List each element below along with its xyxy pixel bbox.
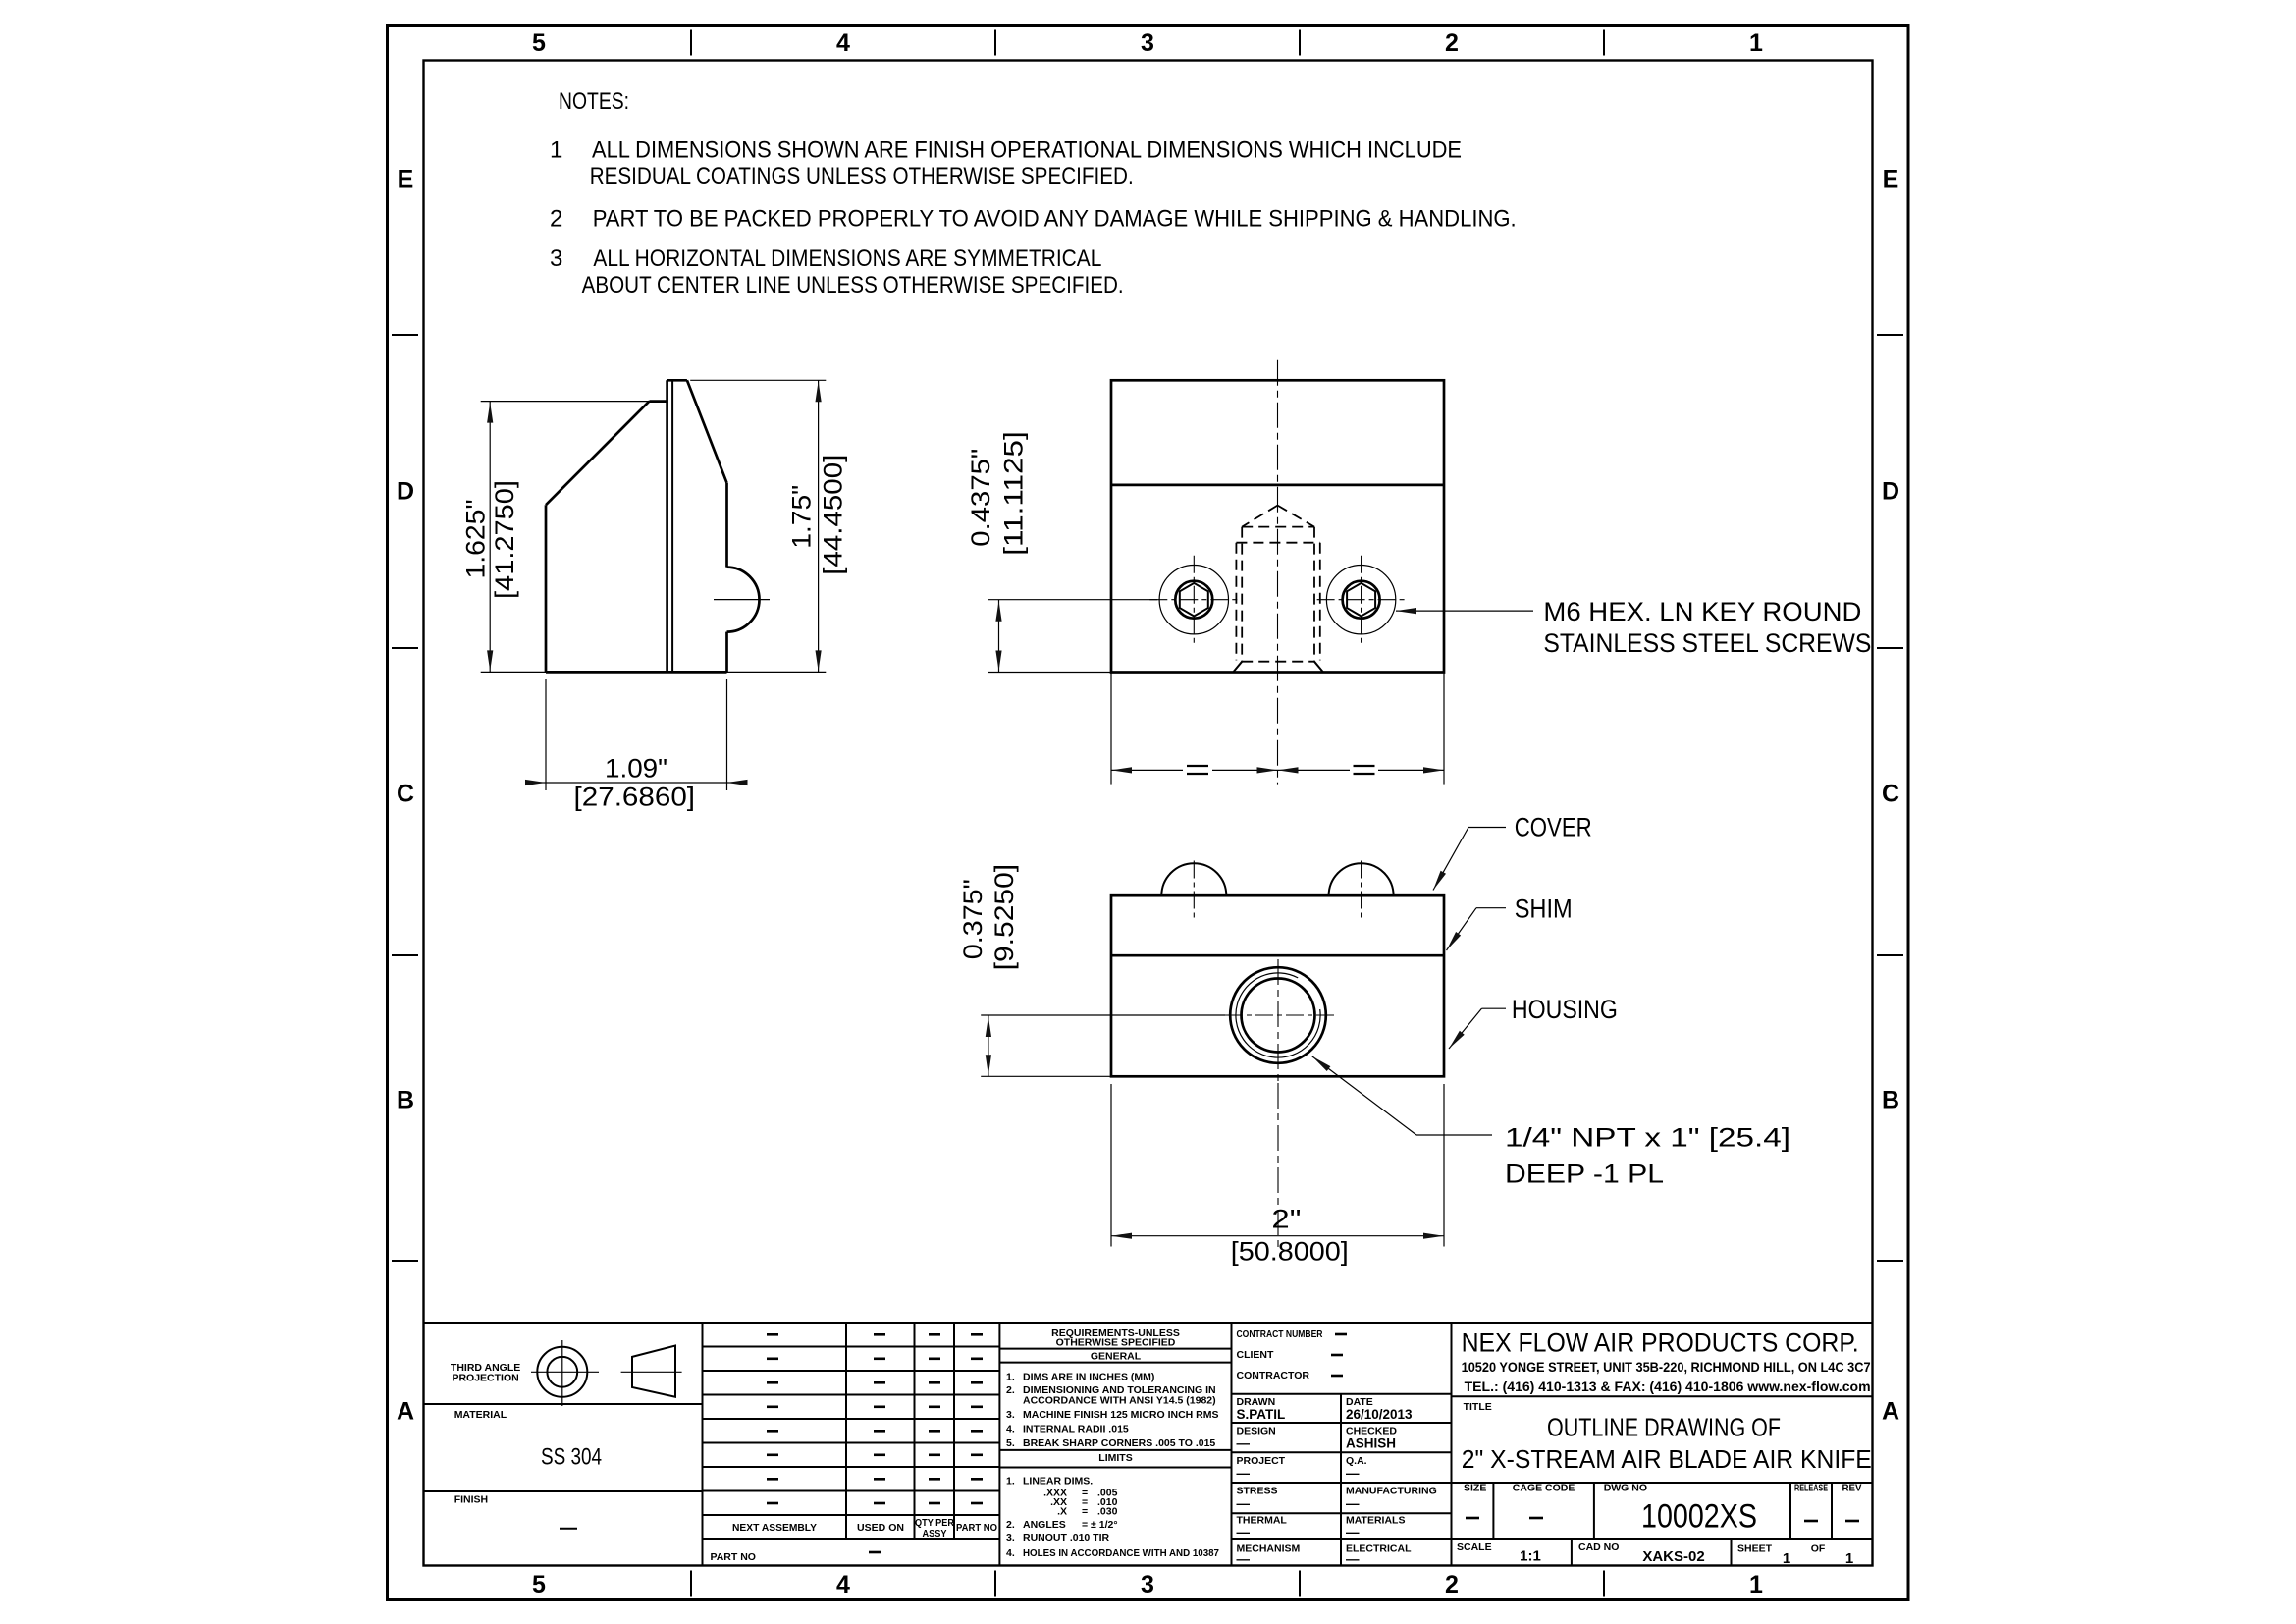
svg-text:5: 5 [532, 1571, 546, 1598]
svg-text:1.09": 1.09" [605, 754, 667, 784]
svg-text:—: — [1237, 1436, 1251, 1451]
svg-text:REV: REV [1842, 1483, 1862, 1494]
svg-text:—: — [1237, 1525, 1251, 1540]
svg-text:= ± 1/2°: = ± 1/2° [1082, 1519, 1118, 1531]
svg-text:1.: 1. [1006, 1475, 1015, 1487]
svg-text:2.: 2. [1006, 1519, 1015, 1531]
svg-text:CLIENT: CLIENT [1237, 1349, 1275, 1361]
svg-text:E: E [398, 166, 414, 193]
svg-text:DIMS ARE IN INCHES (MM): DIMS ARE IN INCHES (MM) [1023, 1372, 1154, 1383]
svg-text:GENERAL: GENERAL [1091, 1350, 1142, 1362]
svg-text:1/4" NPT x 1" [25.4]: 1/4" NPT x 1" [25.4] [1505, 1123, 1790, 1153]
svg-text:C: C [1882, 781, 1899, 808]
svg-text:M6 HEX. LN KEY ROUND: M6 HEX. LN KEY ROUND [1543, 597, 1861, 626]
svg-text:OF: OF [1811, 1543, 1826, 1555]
svg-text:BREAK SHARP CORNERS .005 TO .0: BREAK SHARP CORNERS .005 TO .015 [1023, 1437, 1215, 1449]
svg-text:[9.5250]: [9.5250] [989, 864, 1019, 971]
svg-text:INTERNAL RADII .015: INTERNAL RADII .015 [1023, 1424, 1129, 1435]
svg-text:D: D [397, 478, 414, 506]
svg-text:[41.2750]: [41.2750] [490, 480, 519, 599]
svg-text:1: 1 [1845, 1550, 1853, 1567]
svg-text:OUTLINE DRAWING OF: OUTLINE DRAWING OF [1547, 1413, 1781, 1442]
svg-text:A: A [1882, 1398, 1899, 1426]
svg-text:PART TO BE PACKED PROPERLY TO: PART TO BE PACKED PROPERLY TO AVOID ANY … [593, 206, 1517, 233]
svg-text:0.375": 0.375" [958, 879, 988, 959]
svg-text:STAINLESS STEEL SCREWS: STAINLESS STEEL SCREWS [1543, 628, 1871, 658]
svg-text:HOUSING: HOUSING [1512, 995, 1618, 1024]
svg-text:—: — [1346, 1552, 1360, 1567]
svg-text:[44.4500]: [44.4500] [819, 455, 848, 575]
svg-text:NEX FLOW AIR PRODUCTS CORP.: NEX FLOW AIR PRODUCTS CORP. [1462, 1327, 1859, 1357]
svg-text:4.: 4. [1006, 1547, 1015, 1559]
svg-text:1.: 1. [1006, 1372, 1015, 1383]
svg-text:CAGE CODE: CAGE CODE [1513, 1483, 1575, 1494]
svg-text:3.: 3. [1006, 1532, 1015, 1543]
svg-text:2: 2 [550, 206, 562, 233]
svg-text:RESIDUAL COATINGS UNLESS OTHER: RESIDUAL COATINGS UNLESS OTHERWISE SPECI… [590, 163, 1134, 189]
svg-text:—: — [1346, 1496, 1360, 1511]
svg-text:NOTES:: NOTES: [559, 88, 629, 115]
svg-text:.X: .X [1057, 1506, 1067, 1518]
svg-text:PROJECTION: PROJECTION [452, 1372, 518, 1383]
svg-text:NEXT ASSEMBLY: NEXT ASSEMBLY [732, 1522, 817, 1534]
svg-text:1.625": 1.625" [461, 500, 491, 579]
svg-text:LINEAR DIMS.: LINEAR DIMS. [1023, 1475, 1093, 1487]
svg-text:1:1: 1:1 [1520, 1548, 1541, 1565]
svg-text:D: D [1882, 478, 1899, 506]
svg-text:[50.8000]: [50.8000] [1231, 1237, 1349, 1267]
svg-text:FINISH: FINISH [454, 1494, 488, 1506]
svg-text:MACHINE FINISH 125 MICRO INCH: MACHINE FINISH 125 MICRO INCH RMS [1023, 1409, 1219, 1421]
svg-text:1: 1 [1749, 29, 1763, 57]
svg-text:4: 4 [836, 1571, 850, 1598]
svg-text:STRESS: STRESS [1237, 1486, 1278, 1497]
svg-text:ACCORDANCE WITH ANSI Y14.5 (19: ACCORDANCE WITH ANSI Y14.5 (1982) [1023, 1395, 1216, 1407]
svg-text:3: 3 [550, 245, 562, 272]
svg-text:1: 1 [550, 137, 562, 164]
svg-text:=: = [1082, 1506, 1088, 1518]
svg-text:—: — [1346, 1525, 1360, 1540]
svg-text:[27.6860]: [27.6860] [574, 783, 696, 812]
svg-text:LIMITS: LIMITS [1098, 1452, 1132, 1464]
svg-text:A: A [397, 1398, 414, 1426]
svg-text:B: B [397, 1087, 414, 1114]
svg-text:PART NO: PART NO [711, 1551, 756, 1563]
svg-text:DEEP -1 PL: DEEP -1 PL [1505, 1159, 1664, 1188]
svg-text:RELEASE: RELEASE [1794, 1483, 1828, 1494]
svg-text:5: 5 [532, 29, 546, 57]
svg-text:TITLE: TITLE [1464, 1401, 1492, 1413]
svg-text:—: — [1346, 1466, 1360, 1481]
svg-text:CONTRACT NUMBER: CONTRACT NUMBER [1237, 1328, 1323, 1340]
svg-text:RUNOUT .010 TIR: RUNOUT .010 TIR [1023, 1532, 1110, 1543]
svg-text:—: — [1237, 1496, 1251, 1511]
svg-text:4.: 4. [1006, 1424, 1015, 1435]
svg-text:2: 2 [1445, 29, 1459, 57]
svg-text:10002XS: 10002XS [1641, 1497, 1757, 1535]
svg-text:1: 1 [1749, 1571, 1763, 1598]
svg-text:[11.1125]: [11.1125] [998, 431, 1028, 556]
svg-text:SIZE: SIZE [1464, 1483, 1486, 1494]
svg-text:MATERIAL: MATERIAL [454, 1409, 507, 1421]
svg-text:OTHERWISE SPECIFIED: OTHERWISE SPECIFIED [1056, 1337, 1176, 1349]
svg-text:3.: 3. [1006, 1409, 1015, 1421]
svg-text:5.: 5. [1006, 1437, 1015, 1449]
svg-text:1.75": 1.75" [786, 485, 816, 549]
svg-text:CAD NO: CAD NO [1578, 1542, 1619, 1553]
svg-text:ABOUT CENTER LINE UNLESS OTHER: ABOUT CENTER LINE UNLESS OTHERWISE SPECI… [582, 272, 1124, 298]
svg-text:B: B [1882, 1087, 1899, 1114]
svg-text:1: 1 [1783, 1550, 1790, 1567]
svg-text:E: E [1883, 166, 1899, 193]
svg-text:2: 2 [1445, 1571, 1459, 1598]
svg-text:ALL HORIZONTAL DIMENSIONS ARE: ALL HORIZONTAL DIMENSIONS ARE SYMMETRICA… [593, 245, 1101, 272]
svg-text:COVER: COVER [1515, 812, 1592, 841]
svg-text:TEL.: (416) 410-1313 & FAX: (4: TEL.: (416) 410-1313 & FAX: (416) 410-18… [1465, 1379, 1871, 1394]
svg-text:USED ON: USED ON [857, 1522, 904, 1534]
svg-text:2": 2" [1271, 1204, 1301, 1233]
svg-text:3: 3 [1141, 29, 1154, 57]
svg-text:—: — [1237, 1466, 1251, 1481]
svg-text:S.PATIL: S.PATIL [1237, 1407, 1286, 1422]
svg-text:2.: 2. [1006, 1384, 1015, 1396]
svg-text:2" X-STREAM AIR BLADE AIR KNIF: 2" X-STREAM AIR BLADE AIR KNIFE [1462, 1444, 1872, 1474]
svg-text:0.4375": 0.4375" [966, 449, 995, 547]
svg-text:C: C [397, 781, 414, 808]
svg-text:ASSY: ASSY [923, 1528, 947, 1540]
svg-text:3: 3 [1141, 1571, 1154, 1598]
svg-text:4: 4 [836, 29, 850, 57]
svg-text:HOLES IN ACCORDANCE WITH AND 1: HOLES IN ACCORDANCE WITH AND 10387 [1023, 1547, 1219, 1559]
svg-text:SS 304: SS 304 [541, 1443, 602, 1470]
svg-text:ASHISH: ASHISH [1346, 1436, 1396, 1451]
svg-text:SCALE: SCALE [1457, 1542, 1492, 1553]
svg-text:.030: .030 [1097, 1506, 1118, 1518]
svg-text:26/10/2013: 26/10/2013 [1346, 1407, 1413, 1422]
svg-text:—: — [1237, 1552, 1251, 1567]
svg-text:SHEET: SHEET [1737, 1543, 1773, 1555]
svg-text:ALL DIMENSIONS SHOWN ARE FINIS: ALL DIMENSIONS SHOWN ARE FINISH OPERATIO… [592, 137, 1462, 164]
svg-text:ANGLES: ANGLES [1023, 1519, 1066, 1531]
svg-text:DWG NO: DWG NO [1604, 1483, 1647, 1494]
svg-text:XAKS-02: XAKS-02 [1642, 1548, 1704, 1565]
svg-text:10520 YONGE STREET, UNIT 35B-2: 10520 YONGE STREET, UNIT 35B-220, RICHMO… [1462, 1359, 1871, 1375]
svg-text:SHIM: SHIM [1515, 893, 1573, 923]
svg-text:PART NO: PART NO [956, 1522, 997, 1534]
svg-text:CONTRACTOR: CONTRACTOR [1237, 1370, 1310, 1381]
svg-text:MANUFACTURING: MANUFACTURING [1346, 1486, 1437, 1497]
